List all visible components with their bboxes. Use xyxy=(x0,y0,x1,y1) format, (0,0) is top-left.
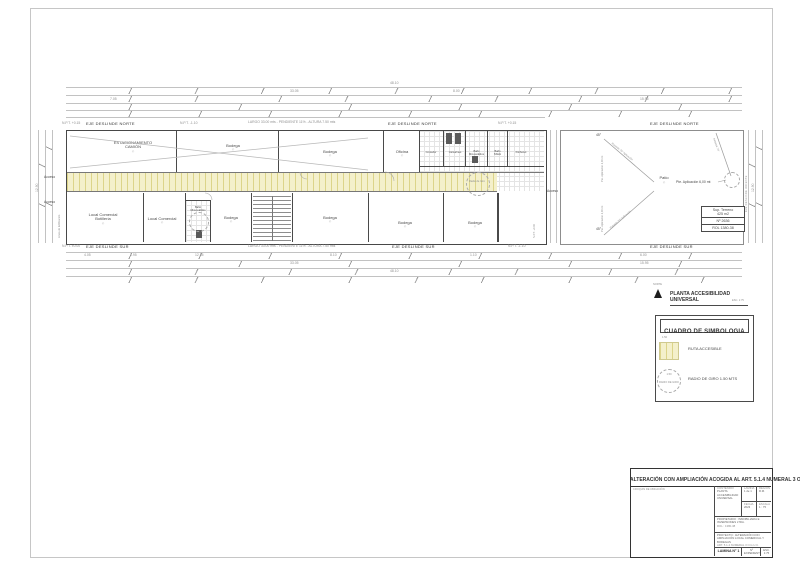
pte-aplicacion-label: Pte. Aplicación 2,00 mt xyxy=(602,206,605,232)
titleblock-cell-esc: ESC. 1:75 xyxy=(760,547,771,556)
accessible-route-strip xyxy=(67,173,497,191)
eje-deslinde-norte-label: EJE DESLINDE NORTE xyxy=(86,122,135,127)
lamina-number: LAMINA N° 1 xyxy=(718,549,740,553)
room-tag-icon: ◇ xyxy=(95,150,171,153)
dim-chain-right-2 xyxy=(755,130,762,243)
dim-line-mid-1 xyxy=(550,130,551,243)
wall-segment xyxy=(419,166,544,167)
room-label-camarines: Camarines xyxy=(444,149,466,155)
room-label-local-comercial: Local Comercial ◇ xyxy=(139,212,185,229)
wall-segment xyxy=(497,193,499,242)
dim-chain-right-3 xyxy=(762,130,769,243)
dim-line-mid-2 xyxy=(556,130,557,243)
porton-npt-label: N.P.T. +0.00 xyxy=(534,224,537,238)
plan-title-piso: PISO 1 xyxy=(670,300,678,303)
dim-value: 12.55 xyxy=(195,254,204,258)
legend-radio-circle-dim: 1.50 xyxy=(658,374,680,377)
legend-ruta-dim: 1.50 xyxy=(662,337,667,340)
wall-segment xyxy=(443,193,444,242)
room-name: Baño Minusválidos xyxy=(191,206,206,212)
legend-ruta-swatch xyxy=(659,342,679,360)
dim-chain-top-3 xyxy=(66,103,742,110)
dim-value: 7.05 xyxy=(110,98,117,102)
dim-value-left: 12.90 xyxy=(36,184,40,193)
npt-mark: N.P.T. +0.15 xyxy=(62,122,80,126)
room-tag-icon: ◇ xyxy=(652,181,676,184)
wall-segment xyxy=(67,191,497,192)
room-label-bano-sshh: Baño SSHH xyxy=(488,148,507,157)
eje-deslinde-sur-label: EJE DESLINDE SUR xyxy=(650,245,693,250)
plan-title-text: PLANTA ACCESIBILIDAD UNIVERSAL xyxy=(670,291,730,303)
room-label-bano-minusvalidos: Baño Minusválidos xyxy=(466,148,487,157)
legend-radio-label: RADIO DE GIRO 1.50 MTS xyxy=(688,377,737,382)
terrain-info-box: Sup. Terreno 425 m2 Nº 2636 ROL 1380-38 xyxy=(701,206,745,232)
wall-segment xyxy=(368,193,369,242)
titleblock-cell-escala: ESCALA 1 : 75 xyxy=(756,501,771,516)
wall-segment xyxy=(383,131,384,172)
dim-value: 8.10 xyxy=(330,254,337,258)
dim-value: 15.95 xyxy=(640,98,649,102)
wall-segment xyxy=(292,193,293,242)
wall-segment xyxy=(176,131,177,172)
legend-radio-circle-text: RADIO DE GIRO xyxy=(656,382,682,385)
wall-segment xyxy=(185,200,211,201)
dim-value: 1.10 xyxy=(470,254,477,258)
eje-deslinde-oriente-label: EJE DESLINDE ORIENTE xyxy=(746,175,749,212)
room-tag-icon: ◇ xyxy=(139,221,185,224)
room-label-estacionamiento: ESTACIONAMIENTO CAMIÓN ◇ xyxy=(95,136,171,157)
terrain-rol-value: ROL 1380-38 xyxy=(712,226,733,230)
legend-radio-circle: 1.50 RADIO DE GIRO xyxy=(657,369,681,393)
ramp-note-top: LARGO 33.00 mts - PENDIENTE 11% - ALTURA… xyxy=(248,121,388,125)
room-name: Camarines xyxy=(449,151,462,154)
room-name: Baño Minusválidos xyxy=(469,150,484,156)
dim-chain-top-1 xyxy=(66,87,742,94)
room-label-bodega: Bodega ◇ xyxy=(310,211,350,228)
titleblock-cell-region: REGION R.M. xyxy=(756,486,771,501)
titleblock-owner-band: PROPIETARIO : INMOBILIARIA E INVERSIONES… xyxy=(714,516,771,532)
cell-value: 2023 xyxy=(744,505,750,509)
titleblock-cell-expediente: Nº EXPEDIENTE xyxy=(741,547,760,556)
room-label-comedor: Comedor xyxy=(420,149,442,155)
dim-value: 1.95 xyxy=(130,254,137,258)
room-tag-icon: ◇ xyxy=(310,220,350,223)
room-label-local-botilleria: Local Comercial Botillería ◇ xyxy=(73,208,133,229)
shower-fixture xyxy=(455,133,461,144)
drawing-sheet: 48.10 33.05 8.00 7.05 15.95 12.90 12.90 … xyxy=(0,0,800,564)
titleblock-sketch-box: CROQUIS DE UBICACIÓN xyxy=(630,486,715,556)
plan-title-scale: ESC. 1:75 xyxy=(732,300,744,303)
room-tag-icon: ◇ xyxy=(73,222,133,225)
dim-chain-bottom-3 xyxy=(66,268,742,275)
shower-fixture xyxy=(446,133,452,144)
eje-deslinde-sur-label: EJE DESLINDE SUR xyxy=(86,245,129,250)
titleblock-banner: ALTERACIÓN CON AMPLIACIÓN ACOGIDA AL ART… xyxy=(630,468,771,487)
dim-value-right: 12.90 xyxy=(752,184,756,193)
room-tag-icon: ◇ xyxy=(455,225,495,228)
npt-mark: N.P.T. -1.10 xyxy=(180,122,197,126)
titleblock-banner-text: ALTERACIÓN CON AMPLIACIÓN ACOGIDA AL ART… xyxy=(630,477,800,483)
expediente-label: Nº EXPEDIENTE xyxy=(744,548,760,555)
legend-title-cell: CUADRO DE SIMBOLOGIA xyxy=(660,319,749,333)
room-name: Local Comercial Botillería xyxy=(89,212,118,222)
room-name: Kitchenet xyxy=(516,151,527,154)
pte-aplicacion-label: Pte. Aplicación 2,00 mt xyxy=(602,156,605,182)
eje-deslinde-norte-label: EJE DESLINDE NORTE xyxy=(388,122,437,127)
rol-line: ROL : 1380-38 xyxy=(717,524,735,528)
titleblock-cell-contenido: CONTENIDO PLANTA ACCESIBILIDAD UNIVERSAL xyxy=(714,486,741,516)
titleblock-project-band: PROYECTO : ALTERACIÓN CON AMPLIACIÓN LOC… xyxy=(714,532,771,547)
dim-value: 15.95 xyxy=(640,262,649,266)
npt-mark: N.P.T. -1.10 xyxy=(508,245,525,249)
turning-radius-circle xyxy=(466,172,490,196)
access-label: Acceso xyxy=(44,176,55,180)
room-name: Baño SSHH xyxy=(494,150,501,156)
room-tag-icon: ◇ xyxy=(385,154,419,157)
access-label: Acceso xyxy=(44,201,55,205)
room-name: Comedor xyxy=(426,151,437,154)
room-label-bodega: Bodega ◇ xyxy=(385,216,425,233)
room-label-kitchenet: Kitchenet xyxy=(508,149,534,155)
room-tag-icon: ◇ xyxy=(385,225,425,228)
cell-value: R.M. xyxy=(759,489,765,493)
turning-radius-circle xyxy=(724,172,740,188)
turning-radius-circle xyxy=(189,212,209,232)
room-tag-icon: ◇ xyxy=(211,220,251,223)
ramp-note-bottom: LARGO 33.00 mts - PENDIENTE 11% - ALTURA… xyxy=(248,245,388,249)
npt-mark: N.P.T. +0.15 xyxy=(498,122,516,126)
titleblock-croquis-note: CROQUIS DE UBICACIÓN xyxy=(633,489,665,492)
toilet-fixture xyxy=(472,156,478,163)
dim-line-top-5 xyxy=(66,117,545,118)
patio-label: Patio ◇ xyxy=(652,176,676,184)
north-label: NORTE xyxy=(653,284,662,287)
dim-value: 4.05 xyxy=(84,254,91,258)
cell-value: PLANTA ACCESIBILIDAD UNIVERSAL xyxy=(717,489,738,500)
eje-deslinde-norte-label: EJE DESLINDE NORTE xyxy=(650,122,699,127)
room-label-bodega: Bodega ◇ xyxy=(213,139,253,156)
titleblock-cell-lamina-n: LAMINA N° 1 xyxy=(714,547,741,556)
room-label-bodega: Bodega ◇ xyxy=(310,145,350,162)
pte-aplicacion-6-label: Pte. Aplicación 6,00 mt xyxy=(676,181,711,185)
wall-segment xyxy=(251,193,252,242)
turning-radius-note: Radio de Giro xyxy=(464,181,490,184)
room-tag-icon: ◇ xyxy=(310,154,350,157)
esc-label: ESC. 1:75 xyxy=(763,548,770,555)
dim-value: 6.00 xyxy=(640,254,647,258)
dim-value: 8.00 xyxy=(453,90,460,94)
eje-deslinde-sur-label: EJE DESLINDE SUR xyxy=(392,245,435,250)
angle-label: 45° xyxy=(596,134,601,138)
dim-value: 33.05 xyxy=(290,90,299,94)
room-label-oficina: Oficina ◇ xyxy=(385,145,419,162)
legend-ruta-label: RUTA ACCESIBLE xyxy=(688,347,722,352)
legend-title: CUADRO DE SIMBOLOGIA xyxy=(664,329,745,335)
dim-value: 33.05 xyxy=(290,262,299,266)
dim-chain-top-4 xyxy=(66,110,742,117)
titleblock-cell-fecha: FECHA 2023 xyxy=(741,501,756,516)
linea-edificacion-label: Línea de Edificación xyxy=(59,215,62,238)
dim-chain-bottom-4 xyxy=(66,276,742,283)
titleblock-cell-lamina: LAMINA 1 de 1 xyxy=(741,486,756,501)
dim-chain-left-2 xyxy=(45,130,52,243)
room-tag-icon: ◇ xyxy=(213,148,253,151)
terrain-number-value: Nº 2636 xyxy=(717,219,730,223)
npt-mark: N.P.T. ±0.00 xyxy=(62,245,80,249)
room-label-bodega: Bodega ◇ xyxy=(211,211,251,228)
dim-value: 48.10 xyxy=(390,270,399,274)
room-label-bano-minusvalidos: Baño Minusválidos xyxy=(186,204,210,213)
north-arrow-icon xyxy=(654,289,662,298)
wall-segment xyxy=(278,131,279,172)
room-name: ESTACIONAMIENTO CAMIÓN xyxy=(114,140,152,150)
dim-value: 48.10 xyxy=(390,82,399,86)
cell-value: 1 : 75 xyxy=(759,505,766,509)
terrain-area-value: 425 m2 xyxy=(717,212,729,216)
cell-value: 1 de 1 xyxy=(744,489,752,493)
access-label: Acceso xyxy=(547,190,558,194)
room-label-bodega: Bodega ◇ xyxy=(455,216,495,233)
stair-center-line xyxy=(272,196,273,241)
